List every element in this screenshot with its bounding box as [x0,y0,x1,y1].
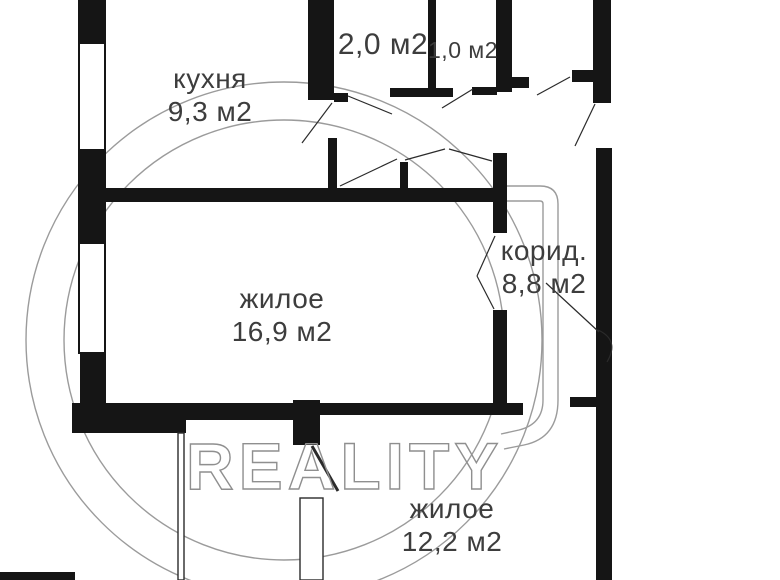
room-name-living16: жилое [232,282,333,315]
door-leaf-entrance [575,104,595,146]
partition-balcony [178,433,184,580]
window-kitchen [79,43,105,150]
door-leaf-entry-top [537,77,570,95]
room-label-storage1: 1,0 м2 [428,34,498,67]
room-label-living16: жилое 16,9 м2 [232,282,333,348]
wall-vestibule-stub [512,77,529,88]
room-area-kitchen: 9,3 м2 [168,95,253,128]
wall-bottom-left-bar [0,572,75,580]
wall-corridor-left-lower [493,310,507,403]
wall-corridor-left-upper [493,153,507,233]
wall-entry-stub [572,70,596,82]
wall-storage-bottom [390,88,453,97]
wall-right-main [596,148,612,580]
room-name-corridor: корид. [501,234,587,267]
wall-stub-right-living12 [570,397,597,407]
wall-kitchen-right [308,0,334,100]
room-area-corridor: 8,8 м2 [501,267,587,300]
wall-right-top [593,0,611,103]
room-label-storage2: 2,0 м2 [338,28,428,61]
door-leaf-storage2 [348,96,392,114]
wall-left-low [80,353,106,405]
wall-kitchen-stub [334,93,348,102]
wall-short-post [400,162,408,192]
wall-divider-main [100,188,495,202]
wall-top-living12 [315,403,523,415]
door-leaf-kitchen [302,103,332,143]
wall-bottom-living16-thick [72,403,186,433]
door-leaf-hall-a [340,159,397,186]
wall-vestibule-left [496,0,512,92]
wall-bottom-living16-thin [186,403,303,420]
room-area-storage2: 2,0 м2 [338,28,428,61]
room-area-living16: 16,9 м2 [232,315,333,348]
window-living16 [79,243,105,353]
room-area-storage1: 1,0 м2 [428,34,498,67]
room-area-living12: 12,2 м2 [402,525,503,558]
room-label-corridor: корид. 8,8 м2 [501,234,587,300]
floor-plan: REALITY кухня 9,3 м2 2,0 м2 1,0 м2 корид… [0,0,780,580]
room-label-kitchen: кухня 9,3 м2 [168,62,253,128]
wall-left-top [78,0,106,43]
door-leaf-hall-c [449,149,492,161]
door-leaf-hall-b [405,149,445,160]
room-label-living12: жилое 12,2 м2 [402,492,503,558]
partition-living12-left [300,498,323,580]
door-leaf-corridor-b [477,276,494,309]
room-name-kitchen: кухня [168,62,253,95]
room-name-living12: жилое [402,492,503,525]
wall-vestibule-notch [472,87,497,95]
wall-kitchen-lower [328,138,337,195]
